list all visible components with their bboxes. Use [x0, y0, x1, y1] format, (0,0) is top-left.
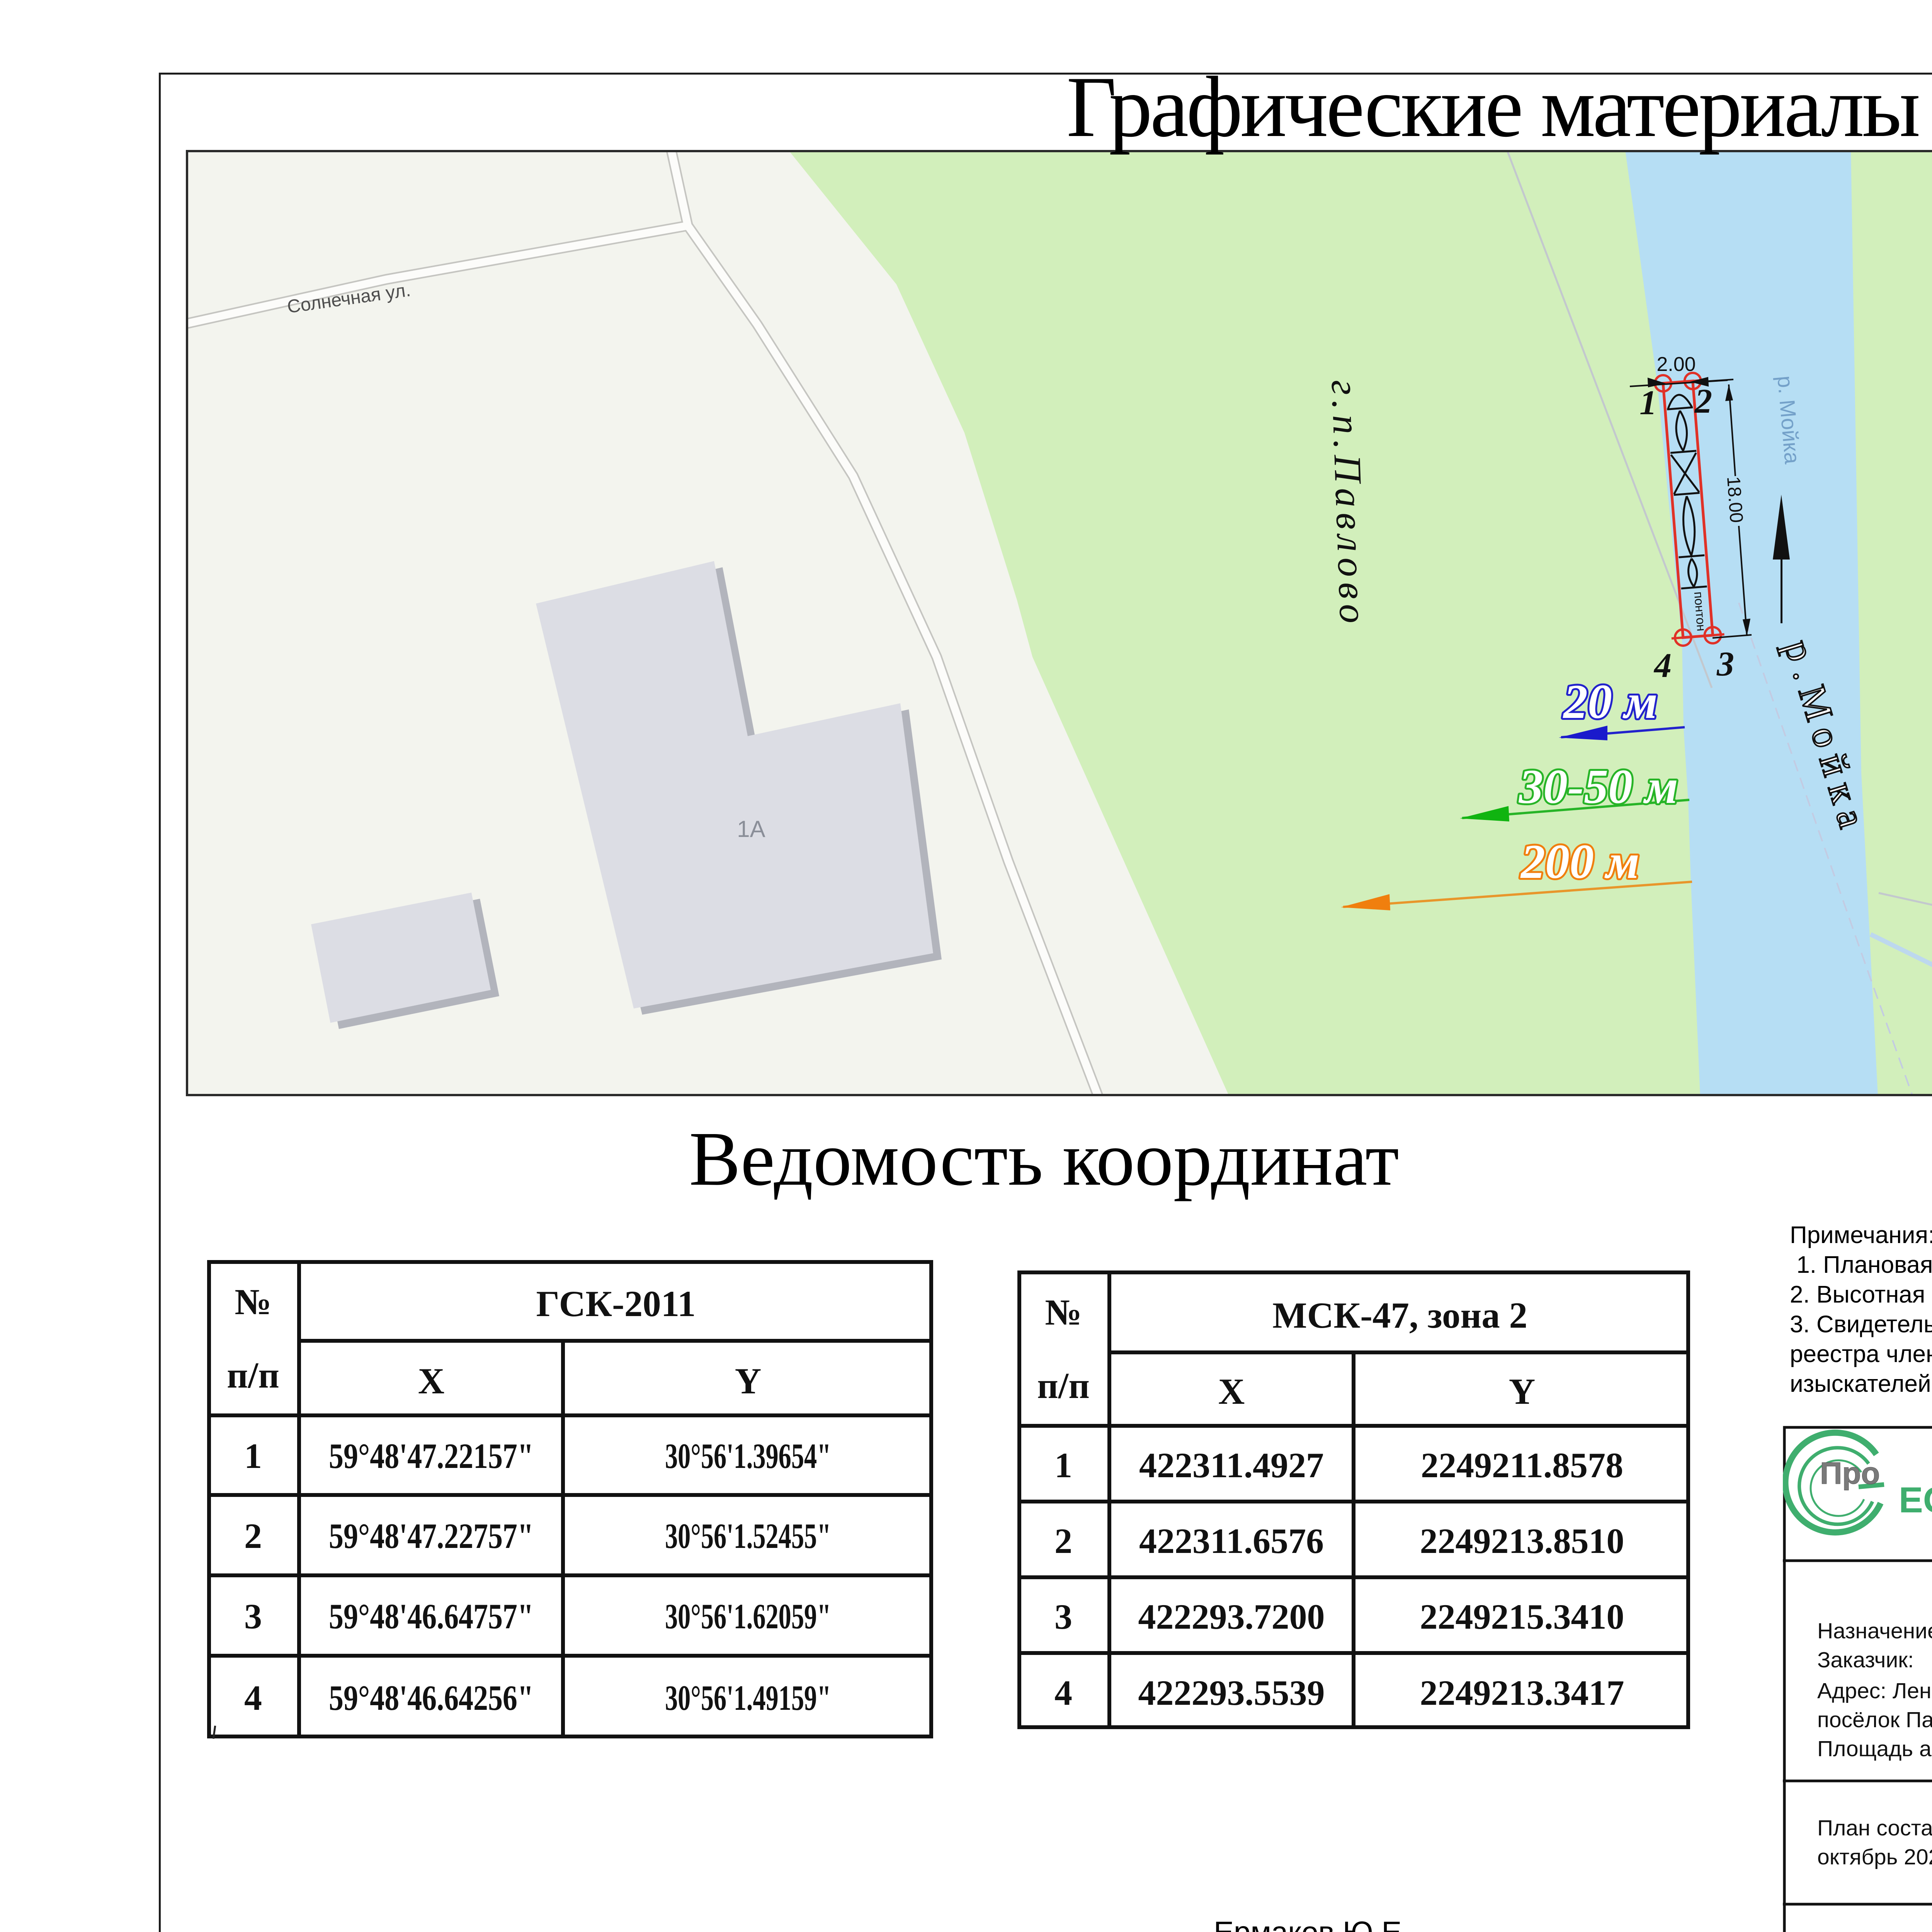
svg-text:ЕО: ЕО [1899, 1480, 1932, 1520]
svg-text:№: № [1045, 1292, 1082, 1333]
svg-text:18.00: 18.00 [1723, 476, 1747, 524]
svg-text:посёлок Павлово: посёлок Павлово [1817, 1708, 1932, 1732]
svg-text:422311.6576: 422311.6576 [1139, 1521, 1324, 1561]
svg-text:59°48'47.22757": 59°48'47.22757" [329, 1516, 534, 1556]
svg-text:59°48'46.64256": 59°48'46.64256" [329, 1678, 534, 1718]
svg-text:Y: Y [1509, 1371, 1536, 1412]
svg-text:59°48'47.22157": 59°48'47.22157" [329, 1436, 534, 1476]
svg-text:20 м: 20 м [1563, 675, 1658, 729]
svg-text:Заказчик:: Заказчик: [1817, 1648, 1914, 1672]
svg-text:п/п: п/п [1037, 1365, 1090, 1406]
svg-text:Назначение работ: для проектир: Назначение работ: для проектирования [1817, 1619, 1932, 1643]
svg-text:1: 1 [1054, 1446, 1072, 1485]
svg-text:№: № [235, 1281, 271, 1322]
svg-text:2249213.3417: 2249213.3417 [1420, 1673, 1624, 1713]
svg-text:Площадь акватории - 0,00003 кв: Площадь акватории - 0,00003 кв. км. [1817, 1736, 1932, 1761]
svg-text:1: 1 [244, 1436, 262, 1476]
svg-text:2: 2 [1054, 1521, 1072, 1561]
svg-text:2249213.8510: 2249213.8510 [1420, 1521, 1624, 1561]
svg-text:Про: Про [1820, 1456, 1880, 1490]
svg-text:1: 1 [1639, 384, 1657, 422]
svg-text:422311.4927: 422311.4927 [1139, 1446, 1324, 1485]
svg-text:30°56'1.39654": 30°56'1.39654" [665, 1436, 831, 1476]
svg-text:200 м: 200 м [1520, 835, 1639, 889]
svg-text:422293.5539: 422293.5539 [1138, 1673, 1325, 1713]
svg-text:План составлен по материалам с: План составлен по материалам съемки план… [1817, 1816, 1932, 1840]
svg-text:4: 4 [244, 1678, 262, 1718]
svg-text:Y: Y [735, 1361, 762, 1401]
svg-text:2249211.8578: 2249211.8578 [1421, 1446, 1623, 1485]
svg-text:1А: 1А [737, 816, 765, 842]
svg-text:422293.7200: 422293.7200 [1138, 1597, 1325, 1636]
svg-text:п/п: п/п [227, 1355, 279, 1396]
svg-text:ГСК-2011: ГСК-2011 [536, 1283, 696, 1324]
svg-text:октябрь 2020г.: октябрь 2020г. [1817, 1845, 1932, 1869]
svg-text:2: 2 [244, 1516, 262, 1556]
svg-text:30-50 м: 30-50 м [1519, 760, 1678, 814]
svg-text:30°56'1.62059": 30°56'1.62059" [665, 1597, 831, 1636]
svg-text:59°48'46.64757": 59°48'46.64757" [329, 1597, 534, 1636]
svg-text:4: 4 [1054, 1673, 1072, 1713]
svg-text:30°56'1.49159": 30°56'1.49159" [665, 1678, 831, 1718]
svg-text:3: 3 [1054, 1597, 1072, 1636]
svg-text:X: X [1218, 1371, 1245, 1412]
svg-text:2.00: 2.00 [1656, 353, 1696, 376]
svg-text:2: 2 [1694, 382, 1712, 420]
svg-text:г.п.Павлово: г.п.Павлово [1323, 379, 1375, 629]
svg-text:30°56'1.52455": 30°56'1.52455" [665, 1516, 831, 1556]
svg-text:3: 3 [244, 1597, 262, 1636]
svg-text:МСК-47, зона 2: МСК-47, зона 2 [1272, 1295, 1527, 1336]
svg-text:Адрес: Ленинградская область,: Адрес: Ленинградская область, Кировский … [1817, 1679, 1932, 1703]
svg-text:3: 3 [1716, 645, 1734, 683]
svg-text:X: X [418, 1361, 445, 1401]
svg-text:2249215.3410: 2249215.3410 [1420, 1597, 1624, 1636]
